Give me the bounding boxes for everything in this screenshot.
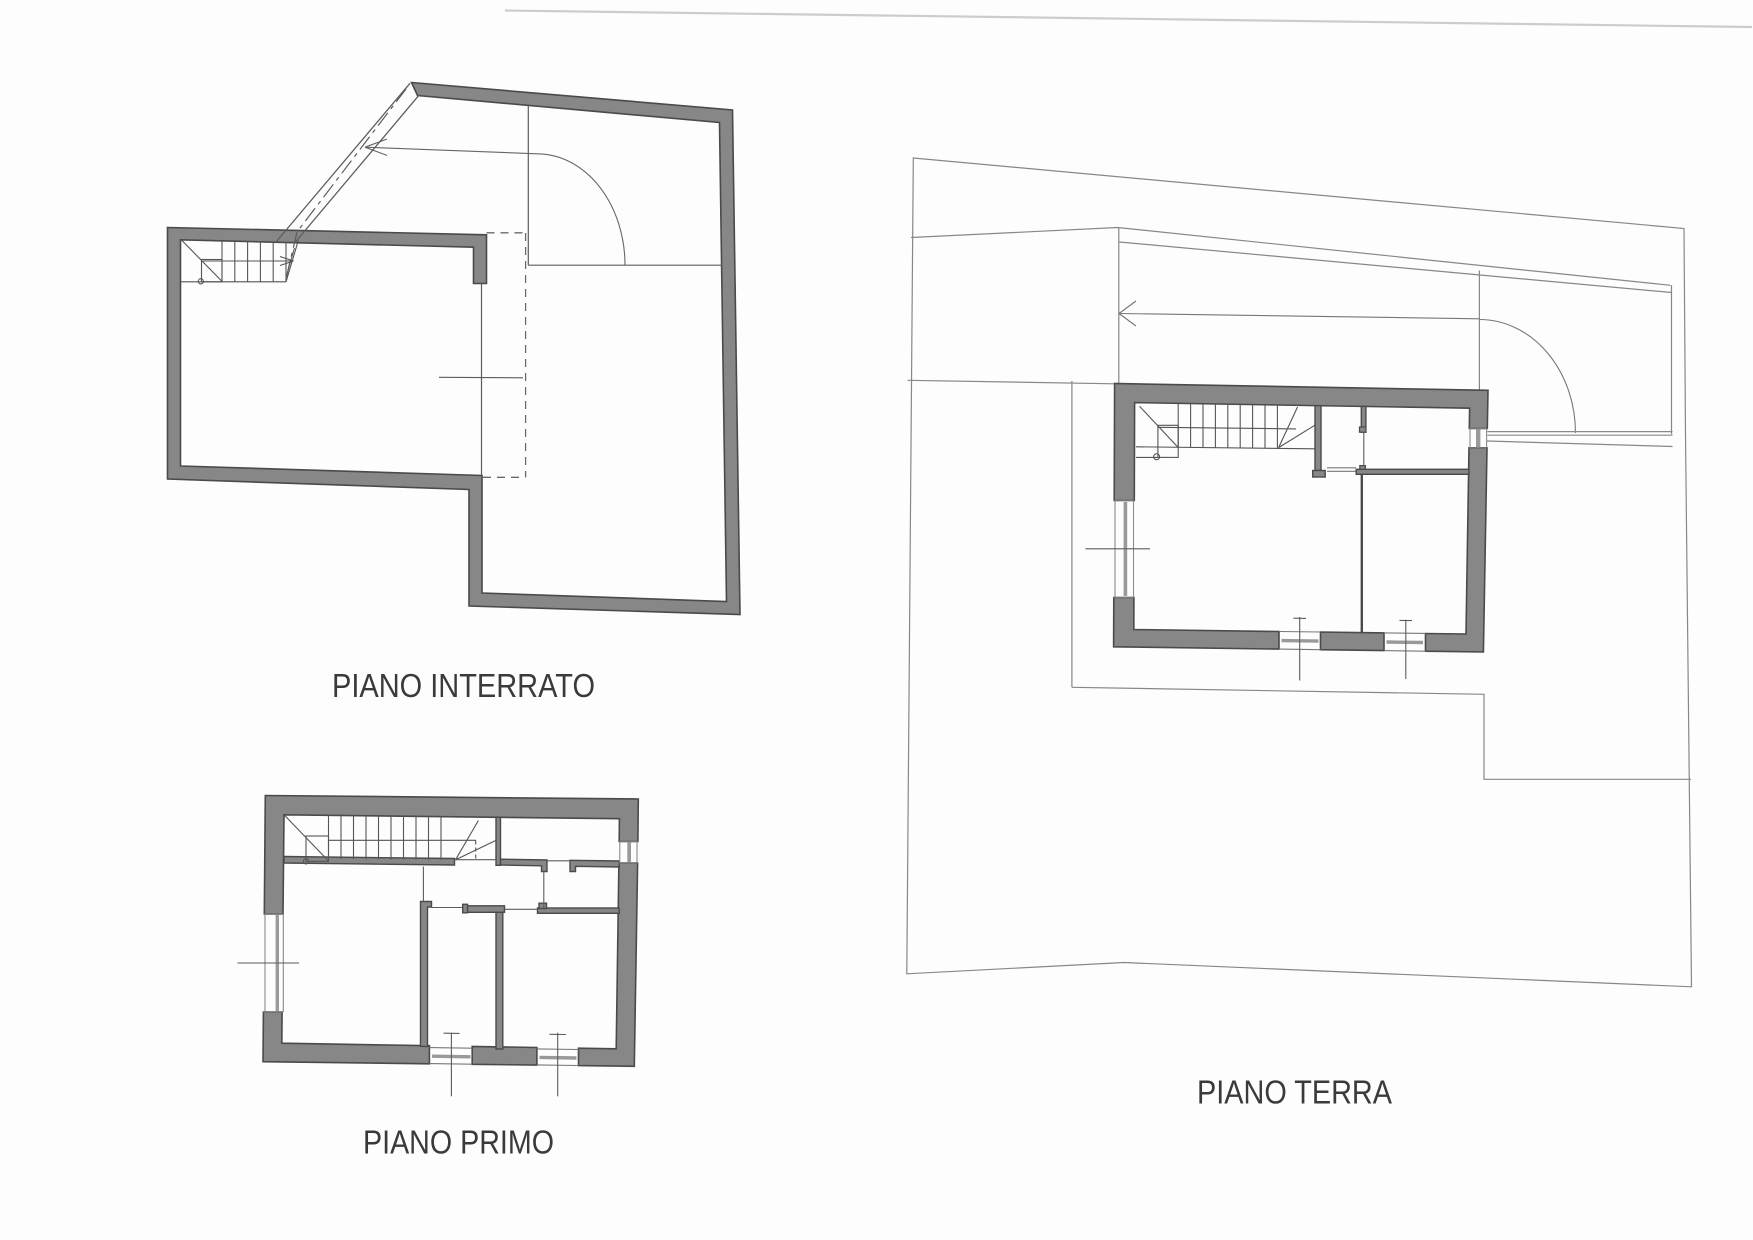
svg-text:PIANO INTERRATO: PIANO INTERRATO (332, 668, 595, 705)
svg-text:PIANO PRIMO: PIANO PRIMO (363, 1125, 554, 1162)
svg-text:PIANO TERRA: PIANO TERRA (1197, 1074, 1393, 1111)
